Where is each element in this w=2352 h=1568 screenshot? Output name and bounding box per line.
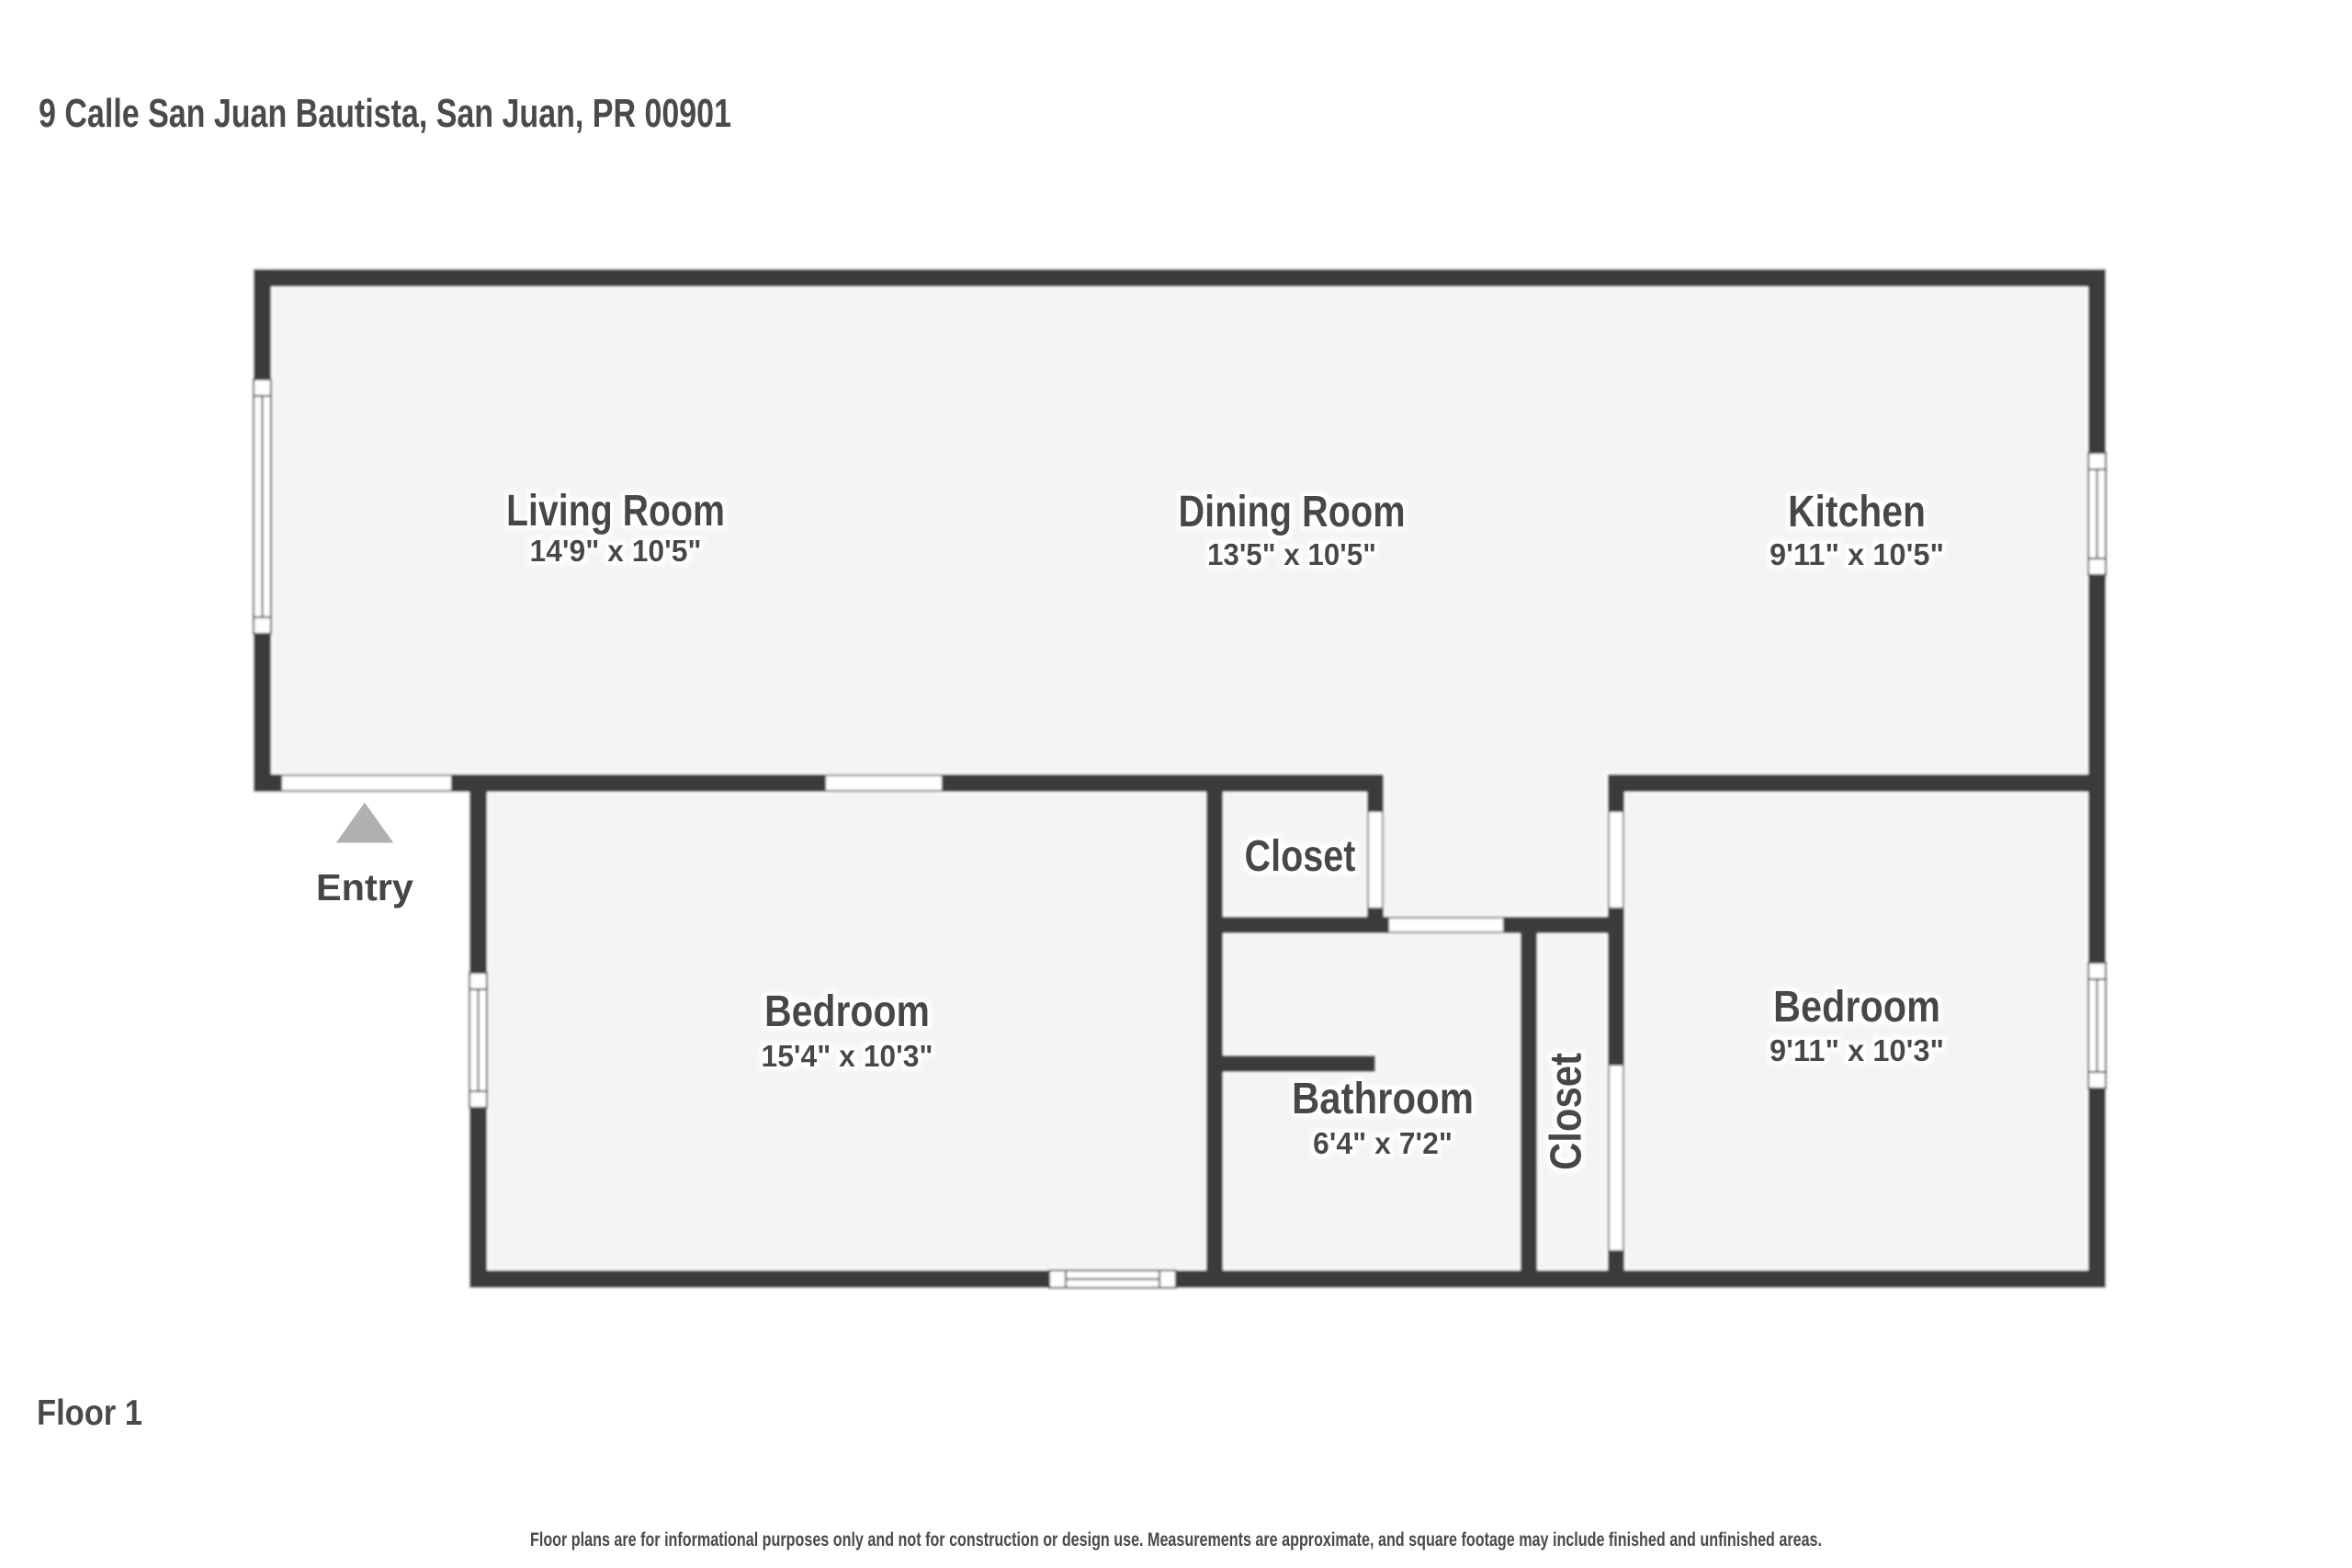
svg-text:9'11" x 10'3": 9'11" x 10'3": [1770, 1033, 1944, 1067]
svg-text:13'5" x 10'5": 13'5" x 10'5": [1207, 537, 1376, 571]
svg-text:Closet: Closet: [1245, 832, 1356, 881]
svg-text:Closet: Closet: [1543, 1053, 1591, 1170]
svg-text:6'4" x 7'2": 6'4" x 7'2": [1313, 1126, 1453, 1160]
svg-text:Bedroom: Bedroom: [764, 987, 930, 1036]
svg-text:Bathroom: Bathroom: [1292, 1075, 1474, 1123]
svg-text:Entry: Entry: [316, 866, 413, 908]
svg-text:Living Room: Living Room: [506, 487, 725, 536]
svg-text:15'4" x 10'3": 15'4" x 10'3": [762, 1039, 933, 1073]
svg-text:Floor 1: Floor 1: [37, 1393, 142, 1433]
svg-text:Bedroom: Bedroom: [1773, 983, 1940, 1032]
svg-text:Kitchen: Kitchen: [1788, 488, 1926, 536]
svg-text:Dining Room: Dining Room: [1179, 488, 1406, 536]
svg-text:9 Calle San Juan Bautista, San: 9 Calle San Juan Bautista, San Juan, PR …: [39, 91, 731, 136]
svg-text:Floor plans are for informatio: Floor plans are for informational purpos…: [530, 1529, 1822, 1551]
svg-text:9'11" x 10'5": 9'11" x 10'5": [1770, 537, 1944, 571]
svg-text:14'9" x 10'5": 14'9" x 10'5": [530, 534, 702, 568]
